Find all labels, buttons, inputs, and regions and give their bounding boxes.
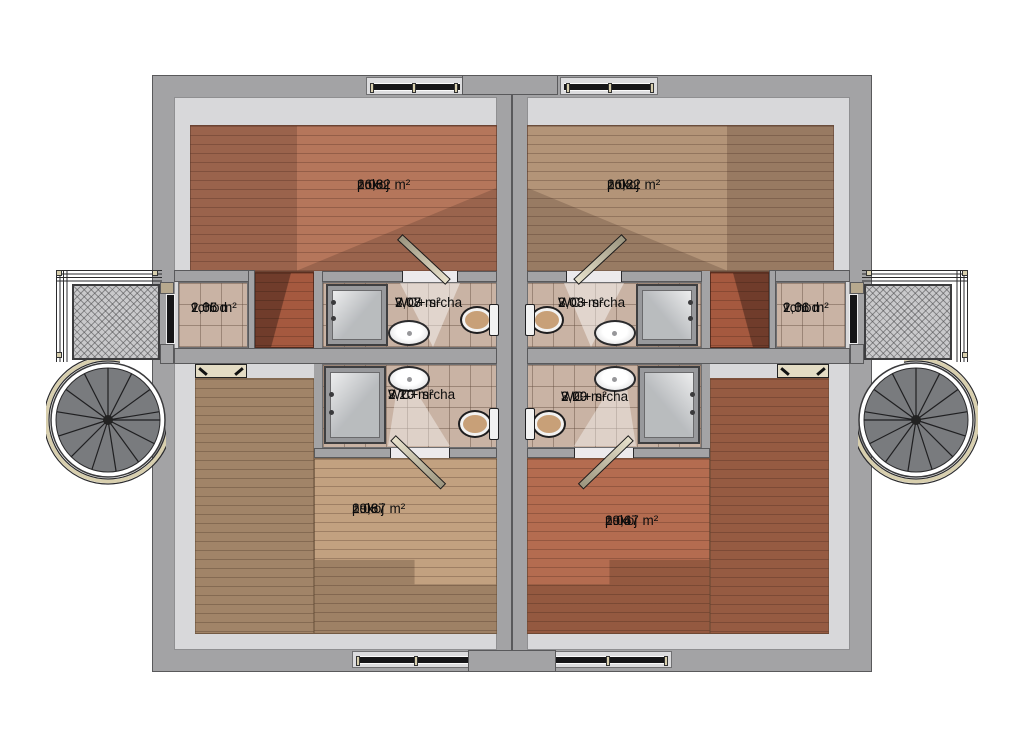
floor-shadow [315,459,496,633]
window-mullion [566,83,570,93]
floor-shadow [727,126,833,271]
door-opening [574,448,634,458]
floor-shadow [196,379,313,633]
entrance-threshold [195,364,247,378]
party-wall-cap [462,75,558,95]
sink [388,320,430,346]
toilet-tank [489,408,499,440]
balcony-railing [862,270,968,283]
entrance-threshold [777,364,829,378]
window-glazing [370,83,460,91]
toilet [458,410,492,438]
balcony-door-glazing [166,294,175,344]
window-mullion [356,656,360,666]
toilet [532,410,566,438]
unit-right [512,0,984,745]
window-glazing [564,83,654,91]
shower-glass [642,290,692,340]
shower-glass [330,372,380,438]
shower [326,284,388,346]
window-mullion [454,83,458,93]
railing-post [56,270,62,276]
window-mullion [608,83,612,93]
railing-post [152,270,158,276]
door-swing-mark [234,367,244,376]
partition-wall [527,348,850,364]
wall-stub [850,344,864,364]
room-area: 3,08 m² [395,294,441,311]
room-area: 19,67 m² [605,512,658,529]
toilet-tank [525,304,535,336]
window-mullion [412,83,416,93]
sink-drain [407,331,412,336]
partition-wall [702,271,710,348]
shower-glass [332,290,382,340]
balcony-railing [955,270,968,362]
railing-post [56,352,62,358]
window-glazing [546,656,668,664]
floor-shadow [191,126,297,271]
shower-valve [688,316,693,321]
roof-shadow [256,273,313,347]
shower-valve [331,316,336,321]
window-mullion [370,83,374,93]
room-floor-bottom [195,378,314,634]
party-wall-cap [468,650,556,672]
floor-shadow [528,459,709,633]
balcony-door-glazing [849,294,858,344]
unit-left [40,0,512,745]
shower [638,366,700,444]
wall-stub [850,282,864,294]
railing-post [962,270,968,276]
room-area: 3,20 m² [561,388,607,405]
window-glazing [356,656,478,664]
partition-wall [314,364,322,448]
floor-plan: 2.06 pokoj 16,82 m² 2.02 pokoj 16,82 m² … [0,0,1024,745]
door-swing-mark [816,367,826,376]
partition-wall [769,270,850,282]
balcony-railing [56,270,69,362]
wall-stub [160,344,174,364]
sink-drain [612,377,617,382]
partition-wall [174,270,255,282]
room-floor-bottom [527,458,710,634]
partition-wall [702,364,710,448]
partition-wall [314,271,322,348]
window-mullion [414,656,418,666]
shower-valve [690,392,695,397]
shower-valve [688,300,693,305]
window-mullion [606,656,610,666]
wall-stub [160,282,174,294]
door-swing-mark [780,367,790,376]
floor-shadow [711,379,828,633]
sink-drain [612,331,617,336]
sink [594,320,636,346]
porch-roof [710,272,769,348]
shower [636,284,698,346]
sink-drain [407,377,412,382]
balcony-railing [56,270,162,283]
shower-valve [331,300,336,305]
room-area: 19,67 m² [352,500,405,517]
door-swing-mark [198,367,208,376]
room-floor-bottom [314,458,497,634]
roof-shadow [711,273,768,347]
railing-post [962,352,968,358]
shower-valve [329,410,334,415]
railing-post [866,270,872,276]
shower-glass [644,372,694,438]
room-floor-top [190,125,497,272]
room-floor-bottom [710,378,829,634]
shower-valve [690,410,695,415]
window-mullion [664,656,668,666]
balcony-grate [72,284,160,360]
balcony-grate [864,284,952,360]
room-area: 16,82 m² [607,176,660,193]
room-floor-top [527,125,834,272]
porch-roof [255,272,314,348]
room-area: 1,66 m² [783,299,829,316]
toilet-tank [489,304,499,336]
partition-wall [174,348,497,364]
shower [324,366,386,444]
door-opening [402,271,458,282]
toilet-tank [525,408,535,440]
room-area: 3,20 m² [388,386,434,403]
room-area: 16,82 m² [357,176,410,193]
room-area: 1,66 m² [191,299,237,316]
room-area: 3,08 m² [558,294,604,311]
window-mullion [650,83,654,93]
shower-valve [329,392,334,397]
